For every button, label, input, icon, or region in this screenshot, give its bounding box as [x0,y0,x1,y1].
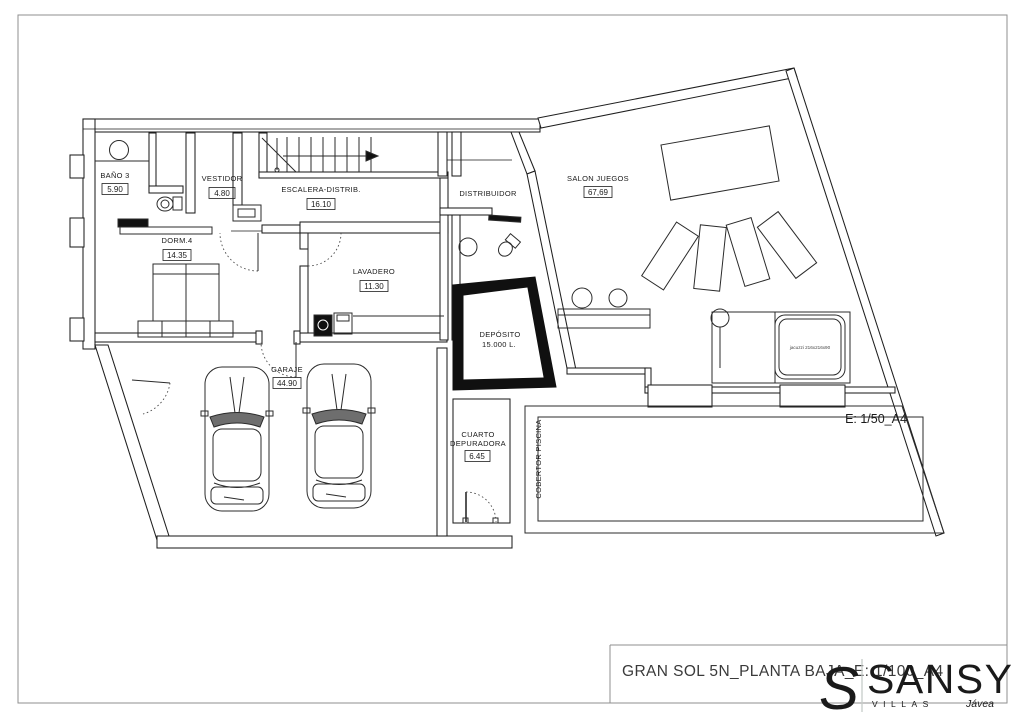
windshield [210,413,264,428]
car-2 [303,364,375,508]
shelf [120,227,212,234]
wall-hall [300,266,308,333]
area-garaje: 44.90 [277,379,298,388]
logo-tagline: VILLAS [872,699,934,709]
label-jacuzzi: jacuzzi 216x216x90 [789,345,831,350]
roof [213,429,261,481]
trunk [211,487,263,504]
wc-washbasin-icon [459,238,477,256]
wall-garage-slant [95,345,169,540]
wall-bottom [157,536,512,548]
bed-lines [153,264,219,321]
door-leaves [132,233,308,383]
wardrobe-right [233,133,242,205]
lounger-1 [642,222,699,290]
label-vestidor: VESTIDOR [202,174,243,183]
lounger-2 [694,225,727,291]
wall-salon-right-diagonal [786,68,944,536]
window-left-3 [70,318,84,341]
wall-bath-divider [149,133,156,190]
wall-garage-right [437,348,447,536]
wall-entry-jamb-1 [438,132,447,176]
floor-plan-sheet: BAÑO 3 5.90 VESTIDOR 4.80 ESCALERA-DISTR… [0,0,1024,723]
cabinet [233,205,261,221]
label-pool-cover: COBERTOR PISCINA [534,419,543,498]
trunk [313,484,365,501]
window-left-2 [70,218,84,247]
wall-salon-top-diagonal [538,68,797,128]
logo: S SANSY VILLAS Jávea [819,655,1014,722]
mirror-left [303,408,310,413]
label-lavadero: LAVADERO [353,267,395,276]
washbasin-icon [110,141,129,160]
dryer-panel [337,315,349,321]
toilet-bowl [161,200,169,208]
wall-lavadero-top [300,222,448,233]
logo-brand: SANSY [867,656,1014,702]
label-banyo3: BAÑO 3 [100,171,129,180]
logo-initial: S [819,655,859,722]
area-vestidor: 4.80 [214,189,230,198]
stool-1 [572,288,592,308]
area-lavadero: 11.30 [364,282,384,291]
wall-toilet-partition [149,186,183,193]
bar-counter [558,309,650,328]
game-table [661,126,779,200]
wall-angled-entry [511,132,535,174]
area-banyo3: 5.90 [107,185,123,194]
pool [538,417,923,521]
floor-plan-drawing: BAÑO 3 5.90 VESTIDOR 4.80 ESCALERA-DISTR… [0,0,1024,723]
car-1 [201,367,273,511]
roof [315,426,363,478]
area-escalera: 16.10 [311,200,332,209]
wall-wc-top [440,208,492,215]
wall-salon-bottom-1 [567,368,647,374]
shelf-dark-end [118,219,148,227]
sliding-door-threshold-1 [648,385,712,407]
label-salon-juegos: SALON JUEGOS [567,174,629,183]
toilet-icon [157,197,173,211]
area-cuarto: 6.45 [469,452,485,461]
window-left-1 [70,155,84,178]
label-escalera: ESCALERA-DISTRIB. [281,185,360,194]
windshield [312,410,366,425]
wc-toilet-icon [496,233,521,259]
label-distribuidor: DISTRIBUIDOR [459,189,517,198]
label-cuarto-line1: CUARTO [461,430,494,439]
logo-location: Jávea [965,698,994,710]
wall-left [83,119,95,349]
door-jamb [294,331,300,344]
wardrobe-left [186,133,195,213]
towel-rail [489,215,521,222]
label-dorm4: DORM.4 [162,236,193,245]
washing-machine-icon [314,315,332,336]
sliding-door-threshold-2 [780,385,845,407]
wall-lavadero-stub [300,233,308,249]
lounger-3 [726,218,770,287]
area-salon: 67,69 [588,188,609,197]
pool-scale-note: E: 1/50_A4 [845,412,907,426]
label-deposito-capacity: 15.000 L. [482,340,516,349]
stair-treads [287,137,371,172]
cabinet-inner [238,209,255,217]
label-cuarto-line2: DEPURADORA [450,439,506,448]
door-arc-garage-side [143,383,170,414]
toilet-tank [173,197,182,210]
mirror-left [201,411,208,416]
room-cuarto-depuradora-outline [453,399,510,523]
wall-top [83,119,540,132]
wall-entry-jamb-2 [452,132,461,176]
label-deposito: DEPÓSITO [479,330,520,339]
stairs [262,137,378,172]
label-garaje: GARAJE [271,365,303,374]
wall-under-stair [259,172,448,178]
wall-dorm-entry [262,225,300,233]
door-arc-lavadero [308,233,341,266]
area-dorm4: 14.35 [167,251,188,260]
door-arc-dorm [220,233,258,271]
stool-2 [609,289,627,307]
stair-direction-line [277,138,366,170]
stair-arrow-icon [366,151,378,161]
